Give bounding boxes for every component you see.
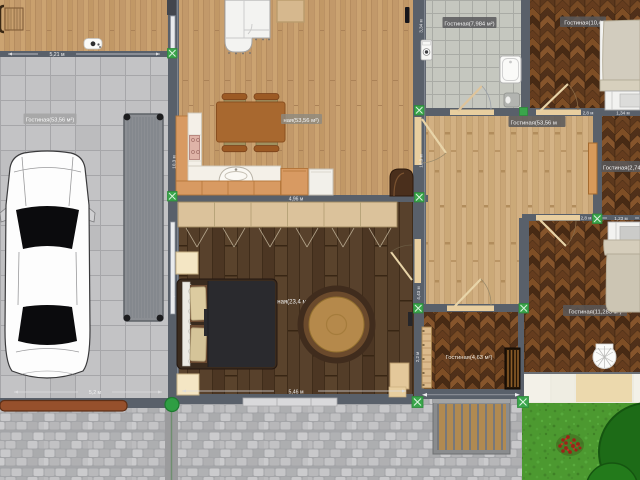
svg-text:5,2 м: 5,2 м — [89, 390, 102, 396]
svg-text:Гостиная(10,4: Гостиная(10,4 — [564, 21, 602, 27]
svg-text:Гостиная(4,63 м²): Гостиная(4,63 м²) — [445, 355, 492, 361]
svg-text:ная(53,56 м²): ная(53,56 м²) — [284, 118, 320, 124]
svg-text:Гостиная(2,74: Гостиная(2,74 — [603, 165, 640, 171]
svg-text:3,34 м: 3,34 м — [419, 19, 424, 32]
svg-text:10,3 м: 10,3 м — [172, 155, 177, 168]
svg-text:2,2 м: 2,2 м — [415, 352, 420, 362]
svg-text:2,8 м: 2,8 м — [581, 216, 592, 221]
svg-text:Гостиная(53,56 м: Гостиная(53,56 м — [511, 120, 557, 126]
svg-text:1,34 м: 1,34 м — [616, 110, 629, 115]
svg-text:4,43 м: 4,43 м — [416, 286, 421, 299]
svg-text:2,8 м: 2,8 м — [583, 110, 594, 115]
svg-text:Гостиная(53,56 м²): Гостиная(53,56 м²) — [26, 118, 75, 124]
svg-text:10,3 м: 10,3 м — [419, 154, 424, 167]
svg-text:5,46 м: 5,46 м — [288, 389, 304, 395]
svg-text:Гостиная(7,984 м²): Гостиная(7,984 м²) — [444, 21, 494, 27]
svg-text:5,21 м: 5,21 м — [49, 52, 65, 58]
svg-text:1,23 м: 1,23 м — [614, 216, 627, 221]
svg-text:4,96 м: 4,96 м — [289, 197, 304, 203]
svg-text:4,96 м: 4,96 м — [171, 286, 176, 299]
